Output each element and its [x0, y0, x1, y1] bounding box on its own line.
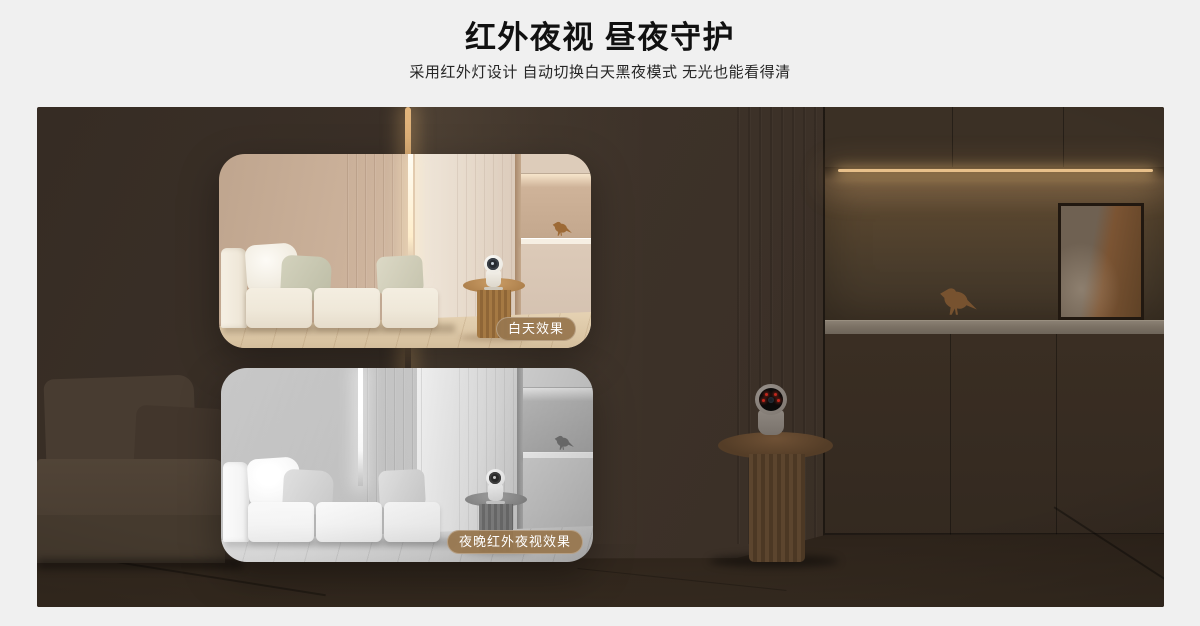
sofa-armrest — [221, 248, 247, 328]
sofa-seat-cushion — [384, 502, 440, 542]
night-room-photo: 白天效果 — [37, 107, 1164, 607]
product-feature-section: 红外夜视 昼夜守护 采用红外灯设计 自动切换白天黑夜模式 无光也能看得清 — [0, 0, 1200, 626]
security-camera — [482, 255, 504, 295]
bird-figurine — [553, 432, 575, 452]
security-camera — [484, 469, 506, 509]
camera-head — [486, 469, 505, 487]
camera-lens — [487, 258, 499, 270]
day-view-image: 白天效果 — [219, 154, 591, 348]
bird-figurine — [551, 218, 573, 238]
upper-cabinet — [521, 154, 591, 174]
night-view-image: 夜晚红外夜视效果 — [221, 368, 593, 562]
sofa-seat-cushion — [246, 288, 312, 328]
photo-vignette — [37, 107, 1164, 607]
camera-base — [484, 287, 503, 290]
page-title: 红外夜视 昼夜守护 — [0, 12, 1200, 57]
sofa-seat-cushion — [314, 288, 380, 328]
camera-base — [486, 501, 505, 504]
sofa-armrest — [223, 462, 249, 542]
day-effect-badge: 白天效果 — [496, 317, 576, 341]
sofa-seat-cushion — [316, 502, 382, 542]
camera-lens — [489, 472, 501, 484]
accent-light-strip — [358, 368, 363, 486]
camera-head — [484, 255, 503, 273]
night-effect-badge: 夜晚红外夜视效果 — [447, 530, 583, 554]
page-subtitle: 采用红外灯设计 自动切换白天黑夜模式 无光也能看得清 — [0, 61, 1200, 82]
sofa-seat-cushion — [382, 288, 438, 328]
upper-cabinet — [523, 368, 593, 388]
sofa-seat-cushion — [248, 502, 314, 542]
bird-figurine-icon — [551, 218, 573, 238]
bird-figurine-icon — [553, 432, 575, 452]
